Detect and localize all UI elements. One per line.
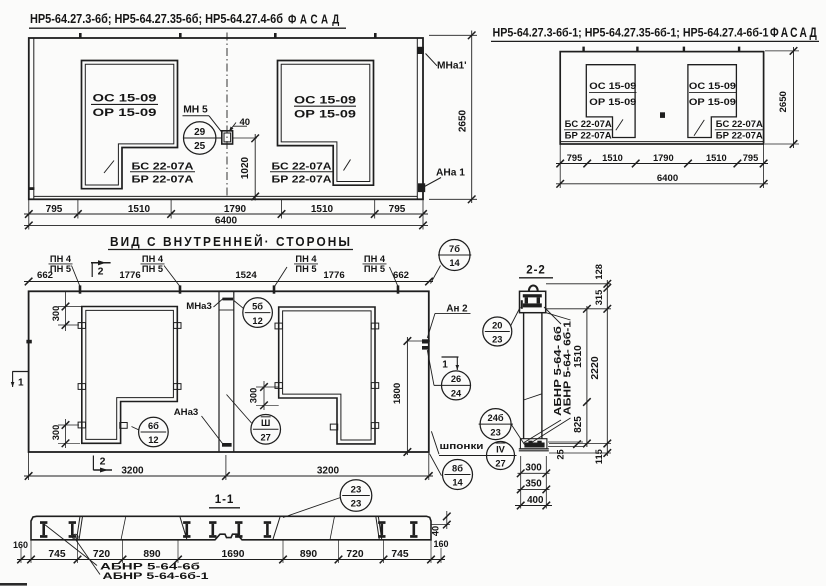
svg-text:МНа1': МНа1' bbox=[437, 60, 467, 71]
svg-text:23: 23 bbox=[490, 427, 500, 437]
svg-text:12: 12 bbox=[148, 435, 158, 445]
svg-text:ОС 15-09: ОС 15-09 bbox=[93, 93, 157, 105]
svg-text:26: 26 bbox=[451, 374, 461, 384]
svg-text:795: 795 bbox=[567, 153, 583, 163]
svg-text:БС 22-07А: БС 22-07А bbox=[272, 161, 333, 172]
svg-text:2650: 2650 bbox=[457, 109, 468, 132]
svg-text:АБНР 5-64-6б-1: АБНР 5-64-6б-1 bbox=[103, 571, 210, 582]
svg-text:1020: 1020 bbox=[240, 156, 251, 179]
svg-text:128: 128 bbox=[594, 264, 604, 280]
svg-text:ОС 15-09: ОС 15-09 bbox=[689, 81, 736, 91]
svg-text:БС 22-07А: БС 22-07А bbox=[565, 119, 612, 129]
svg-text:БР 22-07А: БР 22-07А bbox=[132, 174, 195, 185]
svg-text:795: 795 bbox=[389, 204, 406, 215]
svg-text:1776: 1776 bbox=[323, 270, 344, 281]
svg-text:745: 745 bbox=[48, 549, 65, 560]
svg-text:14: 14 bbox=[449, 258, 460, 268]
svg-text:3200: 3200 bbox=[121, 465, 144, 476]
svg-text:IV: IV bbox=[496, 444, 506, 454]
svg-text:720: 720 bbox=[93, 549, 110, 560]
svg-text:БР 22-07А: БР 22-07А bbox=[272, 174, 333, 185]
svg-text:23: 23 bbox=[351, 484, 362, 495]
svg-text:1: 1 bbox=[18, 378, 24, 389]
svg-text:7б: 7б bbox=[449, 244, 460, 254]
svg-text:24: 24 bbox=[451, 389, 462, 399]
svg-text:300: 300 bbox=[51, 306, 61, 322]
svg-text:БР 22-07А: БР 22-07А bbox=[565, 130, 612, 140]
svg-text:24б: 24б bbox=[488, 413, 504, 423]
svg-text:ФАСАД: ФАСАД bbox=[288, 12, 343, 27]
svg-text:300: 300 bbox=[249, 388, 259, 404]
svg-text:АНа 1: АНа 1 bbox=[436, 168, 465, 179]
svg-text:2650: 2650 bbox=[778, 91, 789, 112]
svg-text:1510: 1510 bbox=[128, 204, 151, 215]
svg-text:6400: 6400 bbox=[215, 215, 238, 226]
svg-text:НР5-64.27.3-6б-1; НР5-64.27.35: НР5-64.27.3-6б-1; НР5-64.27.35-6б-1; НР5… bbox=[493, 26, 769, 40]
svg-text:ПН 5: ПН 5 bbox=[50, 264, 71, 274]
svg-text:ПН 4: ПН 4 bbox=[364, 254, 386, 264]
svg-text:1800: 1800 bbox=[392, 383, 403, 404]
svg-text:ОР 15-09: ОР 15-09 bbox=[294, 109, 356, 121]
svg-text:27: 27 bbox=[495, 459, 505, 469]
svg-text:23: 23 bbox=[351, 499, 362, 510]
svg-text:ПН 5: ПН 5 bbox=[142, 264, 163, 274]
svg-text:МН 5: МН 5 bbox=[183, 104, 208, 115]
svg-text:2-2: 2-2 bbox=[526, 264, 546, 276]
svg-text:2: 2 bbox=[100, 456, 106, 468]
svg-text:МНа3: МНа3 bbox=[186, 301, 212, 312]
svg-text:ОР 15-09: ОР 15-09 bbox=[93, 107, 157, 119]
svg-text:ОС 15-09: ОС 15-09 bbox=[294, 94, 356, 106]
svg-text:23: 23 bbox=[492, 335, 502, 345]
svg-text:8б: 8б bbox=[452, 463, 463, 473]
svg-text:АБНР 5-64- 6б-1: АБНР 5-64- 6б-1 bbox=[562, 320, 573, 415]
svg-text:890: 890 bbox=[300, 549, 317, 560]
svg-text:БС 22-07А: БС 22-07А bbox=[716, 119, 763, 129]
svg-text:2: 2 bbox=[98, 266, 104, 278]
svg-text:ОР 15-09: ОР 15-09 bbox=[589, 97, 636, 107]
svg-text:795: 795 bbox=[743, 153, 759, 163]
svg-text:27: 27 bbox=[261, 433, 271, 443]
svg-text:890: 890 bbox=[143, 549, 160, 560]
svg-text:40: 40 bbox=[431, 526, 441, 536]
svg-text:ПН 4: ПН 4 bbox=[50, 254, 72, 264]
svg-text:Ш: Ш bbox=[261, 418, 270, 428]
svg-text:1510: 1510 bbox=[311, 204, 334, 215]
svg-text:ВИД С ВНУТРЕННЕЙ· СТОРОНЫ: ВИД С ВНУТРЕННЕЙ· СТОРОНЫ bbox=[110, 234, 352, 249]
svg-text:АНа3: АНа3 bbox=[174, 407, 199, 418]
svg-text:14: 14 bbox=[452, 478, 463, 488]
svg-text:20: 20 bbox=[492, 320, 502, 330]
svg-text:720: 720 bbox=[346, 549, 363, 560]
svg-text:1-1: 1-1 bbox=[215, 494, 235, 506]
svg-text:300: 300 bbox=[51, 425, 61, 441]
svg-text:662: 662 bbox=[37, 270, 53, 281]
svg-text:ПН 5: ПН 5 bbox=[364, 264, 385, 274]
svg-text:1510: 1510 bbox=[706, 153, 727, 163]
svg-text:ФАСАД: ФАСАД bbox=[770, 25, 819, 40]
svg-text:шпонки: шпонки bbox=[440, 441, 484, 452]
svg-text:ОС 15-09: ОС 15-09 bbox=[589, 81, 636, 91]
svg-text:825: 825 bbox=[573, 416, 584, 433]
svg-text:160: 160 bbox=[13, 540, 28, 550]
svg-text:662: 662 bbox=[393, 270, 409, 281]
svg-text:350: 350 bbox=[525, 479, 542, 490]
svg-text:6400: 6400 bbox=[657, 173, 678, 184]
svg-text:БС 22-07А: БС 22-07А bbox=[132, 161, 195, 172]
svg-text:315: 315 bbox=[594, 290, 604, 306]
svg-text:795: 795 bbox=[46, 204, 63, 215]
svg-text:ОР 15-09: ОР 15-09 bbox=[689, 97, 736, 107]
svg-text:160: 160 bbox=[433, 539, 448, 549]
svg-text:12: 12 bbox=[252, 316, 262, 326]
svg-text:2220: 2220 bbox=[589, 356, 601, 380]
svg-text:3200: 3200 bbox=[317, 465, 340, 476]
svg-text:25: 25 bbox=[194, 141, 206, 152]
svg-text:1: 1 bbox=[442, 360, 448, 371]
svg-text:БР 22-07А: БР 22-07А bbox=[716, 130, 763, 140]
svg-text:ПН 4: ПН 4 bbox=[295, 254, 317, 264]
svg-text:300: 300 bbox=[525, 463, 542, 474]
svg-text:1510: 1510 bbox=[573, 345, 584, 368]
svg-text:25: 25 bbox=[556, 449, 566, 459]
svg-text:1776: 1776 bbox=[119, 270, 140, 281]
svg-text:1790: 1790 bbox=[653, 153, 674, 163]
svg-text:1524: 1524 bbox=[235, 270, 257, 281]
svg-text:115: 115 bbox=[594, 449, 604, 464]
svg-text:ПН 4: ПН 4 bbox=[142, 254, 164, 264]
svg-text:НР5-64.27.3-6б; НР5-64.27.35-6: НР5-64.27.3-6б; НР5-64.27.35-6б; НР5-64.… bbox=[30, 11, 283, 26]
svg-text:1690: 1690 bbox=[222, 549, 245, 560]
svg-text:1790: 1790 bbox=[224, 204, 247, 215]
svg-text:ПН 5: ПН 5 bbox=[295, 264, 316, 274]
svg-text:745: 745 bbox=[391, 549, 408, 560]
svg-text:1510: 1510 bbox=[602, 153, 623, 163]
svg-text:6б: 6б bbox=[148, 421, 159, 431]
svg-text:400: 400 bbox=[527, 495, 544, 506]
svg-text:5б: 5б bbox=[252, 301, 263, 311]
svg-text:Ан 2: Ан 2 bbox=[446, 304, 468, 315]
svg-text:29: 29 bbox=[194, 127, 206, 138]
